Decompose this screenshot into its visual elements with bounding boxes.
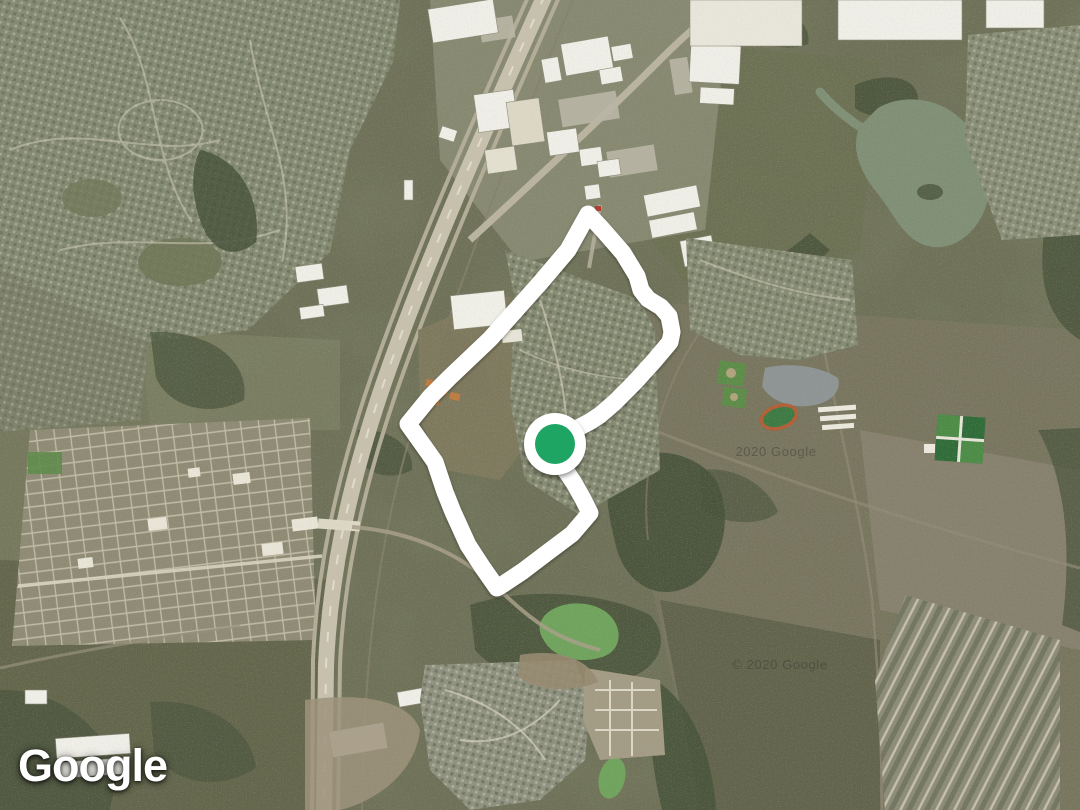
marker-dot [535,424,575,464]
position-marker[interactable] [524,413,586,475]
google-logo: Google [18,740,167,792]
imagery-watermark-1: 2020 Google [735,444,816,459]
map-canvas[interactable]: 2020 Google © 2020 Google [0,0,1080,810]
imagery-watermark-2: © 2020 Google [732,657,827,672]
satellite-imagery [0,0,1080,810]
map-view[interactable]: 2020 Google © 2020 Google Google [0,0,1080,810]
